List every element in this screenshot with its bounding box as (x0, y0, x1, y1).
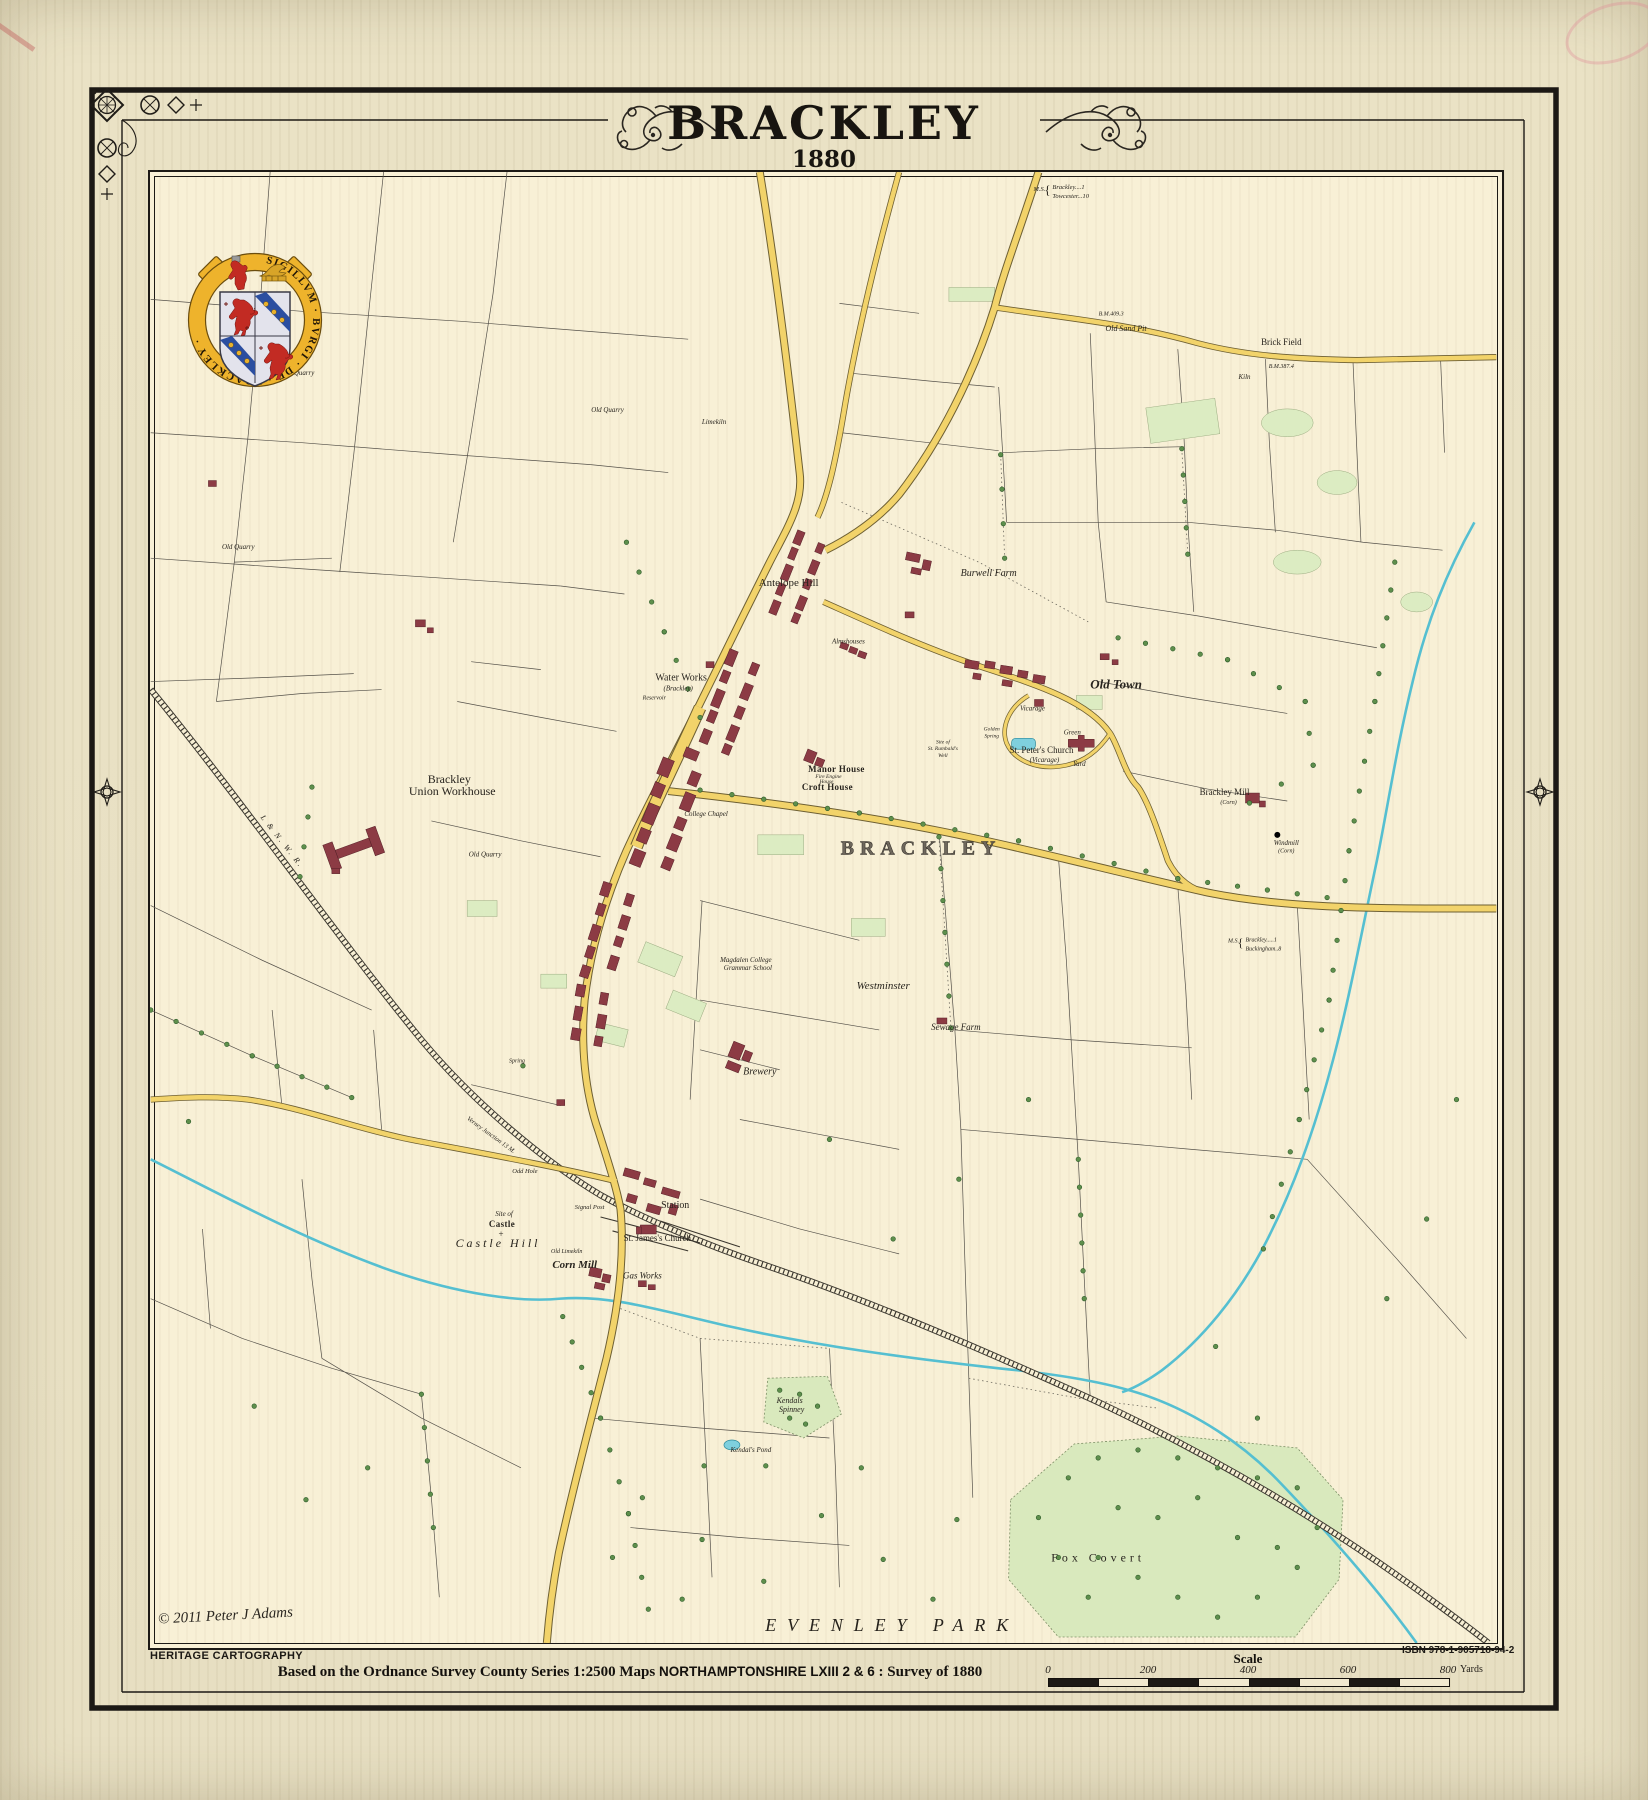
map-label: Gas Works (623, 1271, 662, 1281)
scale-unit-label: Yards (1460, 1664, 1483, 1675)
tree-symbol (947, 994, 952, 999)
map-label: College Chapel (684, 810, 728, 818)
town-buildings (208, 481, 1280, 1291)
tree-symbol (250, 1054, 255, 1059)
tree-symbol (1176, 876, 1181, 881)
tree-symbol (649, 600, 654, 605)
map-label: Buckingham..8 (1245, 946, 1281, 952)
tree-symbol (646, 1607, 651, 1612)
tree-symbol (624, 540, 629, 545)
tree-symbol (610, 1555, 615, 1560)
map-label: Croft House (802, 782, 853, 792)
tree-symbol (998, 452, 1003, 457)
map-label: Kendals (776, 1396, 803, 1405)
tree-symbol (1215, 1615, 1220, 1620)
map-label: Manor House (808, 764, 865, 774)
tree-symbol (1339, 908, 1344, 913)
tree-symbol (787, 1416, 792, 1421)
tree-symbol (1454, 1097, 1459, 1102)
tree-symbol (763, 1464, 768, 1469)
tree-symbol (1392, 560, 1397, 565)
tree-symbol (1112, 861, 1117, 866)
tree-symbol (640, 1495, 645, 1500)
tree-symbol (777, 1388, 782, 1393)
tree-symbol (1116, 1505, 1121, 1510)
map-label: Water Works (655, 673, 707, 684)
tree-symbol (1343, 878, 1348, 883)
map-label: Burwell Farm (961, 568, 1017, 579)
tree-symbol (1001, 521, 1006, 526)
tree-symbol (431, 1525, 436, 1530)
tree-symbol (1076, 1157, 1081, 1162)
tree-symbol (761, 1579, 766, 1584)
attribution-sheet-ref: NORTHAMPTONSHIRE LXIII 2 & 6 (659, 1664, 875, 1679)
tree-symbol (1176, 1456, 1181, 1461)
map-label: St. James's Church (624, 1233, 692, 1243)
tree-symbol (827, 1137, 832, 1142)
tree-symbol (1081, 1268, 1086, 1273)
tree-symbol (1275, 1545, 1280, 1550)
map-label: Old Sand Pit (1106, 324, 1148, 333)
mid-edge-ornament-right (1527, 779, 1553, 805)
tree-symbol (680, 1597, 685, 1602)
map-label: Westminster (857, 980, 911, 992)
tree-symbol (304, 1497, 309, 1502)
map-label: Signal Post (575, 1204, 605, 1211)
tree-symbol (1077, 1185, 1082, 1190)
tree-symbol (943, 930, 948, 935)
scale-bar-segment (1099, 1679, 1149, 1686)
map-label: Almshouses (831, 638, 865, 646)
map-label: Brackley Mill (1200, 787, 1250, 797)
scale-tick-label: 400 (1240, 1664, 1257, 1676)
map-label: (Corn) (1220, 799, 1236, 806)
tree-symbol (300, 1074, 305, 1079)
tree-symbol (1307, 731, 1312, 736)
tree-symbol (793, 802, 798, 807)
tree-symbol (825, 806, 830, 811)
tree-symbol (1156, 1515, 1161, 1520)
tree-symbol (1213, 1344, 1218, 1349)
coat-of-arms: SIGILLVM · BVRGI · DE · BRACKLEY · (150, 208, 360, 403)
tree-symbol (1078, 1213, 1083, 1218)
tree-symbol (186, 1119, 191, 1124)
tree-symbol (1385, 1296, 1390, 1301)
tree-symbol (1312, 1057, 1317, 1062)
tree-symbol (1295, 891, 1300, 896)
map-label: Golden (984, 726, 1000, 732)
tree-symbol (921, 822, 926, 827)
scale-tick-label: 200 (1140, 1664, 1157, 1676)
tree-symbol (1319, 1028, 1324, 1033)
tree-symbol (1182, 499, 1187, 504)
map-label: (Vicarage) (1030, 756, 1060, 764)
tree-symbol (953, 827, 958, 832)
tree-symbol (957, 1177, 962, 1182)
tree-symbol (325, 1085, 330, 1090)
attribution-line: Based on the Ordnance Survey County Seri… (170, 1664, 1090, 1681)
tree-symbol (1185, 552, 1190, 557)
tree-symbol (589, 1390, 594, 1395)
tree-symbol (1176, 1595, 1181, 1600)
map-labels: M.S.{Brackley....1Towcester...10B.M.409.… (222, 182, 1302, 1635)
tree-symbol (1347, 848, 1352, 853)
tree-symbol (1297, 1117, 1302, 1122)
map-label: St. Peter's Church (1010, 745, 1074, 755)
map-label: Fox Covert (1051, 1550, 1145, 1564)
map-label: Spring (509, 1059, 525, 1065)
tree-symbol (298, 874, 303, 879)
tree-symbol (1255, 1416, 1260, 1421)
scale-bar (1048, 1678, 1450, 1687)
tree-symbol (1295, 1565, 1300, 1570)
tree-symbol (1288, 1150, 1293, 1155)
tree-symbol (419, 1392, 424, 1397)
tree-symbol (560, 1314, 565, 1319)
tree-symbol (1331, 968, 1336, 973)
map-label: Kendal's Pond (729, 1446, 771, 1454)
tree-symbol (1389, 588, 1394, 593)
sheet-year: 1880 (0, 146, 1648, 173)
tree-symbol (1255, 1475, 1260, 1480)
map-label: Old Town (1090, 677, 1142, 692)
tree-symbol (945, 962, 950, 967)
tree-symbol (1362, 759, 1367, 764)
tree-symbol (1235, 884, 1240, 889)
map-label: St. Rumbald's (928, 746, 958, 752)
tree-symbol (425, 1459, 430, 1464)
tree-symbol (1215, 1466, 1220, 1471)
tree-symbol (1116, 635, 1121, 640)
tree-symbol (306, 815, 311, 820)
map-label: Brackley.....1 (1245, 937, 1276, 943)
tree-symbol (1373, 699, 1378, 704)
tree-symbol (1335, 938, 1340, 943)
tree-symbol (891, 1237, 896, 1242)
tree-symbol (310, 785, 315, 790)
map-label: Brick Field (1261, 337, 1302, 347)
tree-symbol (1424, 1217, 1429, 1222)
tree-symbol (302, 844, 307, 849)
tree-symbol (639, 1575, 644, 1580)
tree-symbol (1261, 1247, 1266, 1252)
map-label: Corn Mill (552, 1259, 598, 1271)
tree-symbol (1000, 487, 1005, 492)
tree-symbol (1082, 1296, 1087, 1301)
burwell-farm-buildings (903, 552, 932, 577)
tree-symbol (662, 630, 667, 635)
tree-symbol (819, 1513, 824, 1518)
tree-symbol (730, 792, 735, 797)
map-label: Old Quarry (591, 406, 625, 414)
map-label: Castle Hill (456, 1236, 541, 1250)
map-label: EVENLEY PARK (764, 1615, 1019, 1635)
tree-symbol (931, 1597, 936, 1602)
tree-symbol (1080, 1241, 1085, 1246)
tree-symbol (815, 1404, 820, 1409)
tree-symbol (857, 811, 862, 816)
workhouse-building (323, 826, 385, 871)
tree-symbol (252, 1404, 257, 1409)
scale-bar-segment (1250, 1679, 1300, 1686)
tree-symbol (428, 1492, 433, 1497)
tree-symbol (1247, 801, 1252, 806)
attribution-suffix: : Survey of 1880 (879, 1664, 983, 1680)
map-label: (Brackley) (664, 685, 694, 693)
tree-symbol (881, 1557, 886, 1562)
tree-symbol (1002, 556, 1007, 561)
tree-symbol (1026, 1097, 1031, 1102)
shield (220, 292, 293, 386)
tree-symbol (1311, 763, 1316, 768)
scale-bar-segment (1049, 1679, 1099, 1686)
map-label: Well (938, 753, 948, 759)
tree-symbol (1036, 1515, 1041, 1520)
tree-symbol (1016, 839, 1021, 844)
tree-symbol (1080, 854, 1085, 859)
map-label: Old Limekiln (551, 1249, 582, 1255)
map-label: Sewage Farm (931, 1022, 981, 1032)
tree-symbol (617, 1479, 622, 1484)
map-label: Site of (495, 1210, 514, 1218)
tree-symbol (1270, 1214, 1275, 1219)
map-label: Spring (984, 733, 999, 739)
tree-symbol (674, 658, 679, 663)
tree-symbol (1235, 1535, 1240, 1540)
tree-symbol (1304, 1087, 1309, 1092)
tree-symbol (1325, 895, 1330, 900)
tree-symbol (700, 1537, 705, 1542)
tree-symbol (150, 1008, 153, 1013)
map-label: Old Quarry (222, 543, 256, 551)
tree-symbol (1279, 782, 1284, 787)
scale-bar-segment (1149, 1679, 1199, 1686)
map-label: Spinney (779, 1405, 805, 1414)
tree-symbol (1136, 1575, 1141, 1580)
tree-symbol (637, 570, 642, 575)
scale-tick-label: 0 (1045, 1664, 1051, 1676)
tree-symbol (1184, 526, 1189, 531)
map-label: Vicarage (1020, 704, 1045, 712)
tree-symbol (1086, 1595, 1091, 1600)
tree-symbol (1357, 789, 1362, 794)
tree-symbol (1279, 1182, 1284, 1187)
tree-symbol (859, 1466, 864, 1471)
publisher-credit: HERITAGE CARTOGRAPHY (150, 1650, 303, 1662)
tree-symbol (698, 788, 703, 793)
scale-ticks: 0200400600800Yards (1048, 1664, 1468, 1676)
map-label: Reservoir (642, 695, 667, 701)
tree-symbol (803, 1422, 808, 1427)
tree-symbol (579, 1365, 584, 1370)
tree-symbol (365, 1466, 370, 1471)
tree-symbol (1144, 869, 1149, 874)
scale-tick-label: 600 (1340, 1664, 1357, 1676)
map-label: Green (1064, 728, 1082, 736)
tree-symbol (1352, 819, 1357, 824)
tree-symbol (598, 1416, 603, 1421)
tree-symbol (633, 1543, 638, 1548)
tree-symbol (1205, 880, 1210, 885)
map-label: BRACKLEY (841, 838, 1002, 860)
tree-symbol (1096, 1456, 1101, 1461)
map-label: { (1238, 935, 1244, 949)
map-label: Site of (936, 738, 951, 745)
map-label: { (1044, 182, 1050, 197)
scale-bar-segment (1400, 1679, 1449, 1686)
tree-symbol (1315, 1525, 1320, 1530)
tree-symbol (1277, 685, 1282, 690)
map-label: Antelope Hill (759, 577, 819, 589)
tree-symbol (1136, 1448, 1141, 1453)
map-label: Union Workhouse (409, 784, 496, 798)
map-label: Station (661, 1200, 689, 1211)
map-label: Odd Hole (512, 1168, 537, 1175)
map-sheet-page: BRACKLEY 1880 (0, 0, 1648, 1800)
tree-symbol (1225, 657, 1230, 662)
tree-symbol (199, 1031, 204, 1036)
map-label: (Corn) (1278, 848, 1294, 855)
mid-edge-ornament-left (94, 778, 120, 805)
tree-symbol (1180, 446, 1185, 451)
tree-symbol (702, 1464, 707, 1469)
map-label: B.M.387.4 (1269, 363, 1294, 370)
scale-bar-segment (1350, 1679, 1400, 1686)
scale-bar-segment (1300, 1679, 1350, 1686)
map-label: Castle (489, 1219, 515, 1229)
tree-symbol (225, 1042, 230, 1047)
map-label: Kiln (1238, 373, 1252, 381)
tree-symbol (1143, 641, 1148, 646)
tree-symbol (941, 898, 946, 903)
map-label: Brackley....1 (1052, 184, 1084, 191)
tree-symbol (955, 1517, 960, 1522)
trees (150, 446, 1459, 1619)
map-label: Old Quarry (469, 851, 503, 859)
tree-symbol (1385, 616, 1390, 621)
tree-symbol (1295, 1485, 1300, 1490)
tree-symbol (570, 1340, 575, 1345)
tree-symbol (275, 1064, 280, 1069)
map-label: Brewery (743, 1067, 777, 1078)
tree-symbol (174, 1019, 179, 1024)
map-label: Magdalen College (719, 956, 772, 964)
attribution-serif: Based on the Ordnance Survey County Seri… (278, 1664, 656, 1680)
tree-symbol (422, 1425, 427, 1430)
scale-bar-segment (1199, 1679, 1249, 1686)
tree-symbol (761, 797, 766, 802)
tree-symbol (1381, 643, 1386, 648)
scale-tick-label: 800 (1440, 1664, 1457, 1676)
tree-symbol (1181, 473, 1186, 478)
map-label: Towcester...10 (1052, 193, 1089, 200)
tree-symbol (626, 1511, 631, 1516)
tree-symbol (1048, 846, 1053, 851)
map-label: Yard (1073, 760, 1086, 768)
tree-symbol (1198, 652, 1203, 657)
tree-symbol (1251, 671, 1256, 676)
tree-symbol (889, 816, 894, 821)
tree-symbol (1195, 1495, 1200, 1500)
tree-symbol (1171, 646, 1176, 651)
tree-symbol (939, 866, 944, 871)
hedge-lines (620, 449, 1187, 1408)
tree-symbol (349, 1095, 354, 1100)
tree-symbol (1066, 1475, 1071, 1480)
sheet-title: BRACKLEY (0, 96, 1648, 150)
map-label: Limekiln (701, 418, 727, 426)
tree-symbol (1377, 671, 1382, 676)
tree-symbol (608, 1448, 613, 1453)
map-label: Grammar School (724, 964, 772, 972)
tree-symbol (1303, 699, 1308, 704)
tree-symbol (1265, 888, 1270, 893)
map-label: Windmill (1274, 839, 1299, 847)
tree-symbol (1255, 1595, 1260, 1600)
tree-symbol (1327, 998, 1332, 1003)
tree-symbol (1367, 729, 1372, 734)
tree-symbol (698, 715, 703, 720)
map-label: B.M.409.3 (1099, 310, 1124, 317)
